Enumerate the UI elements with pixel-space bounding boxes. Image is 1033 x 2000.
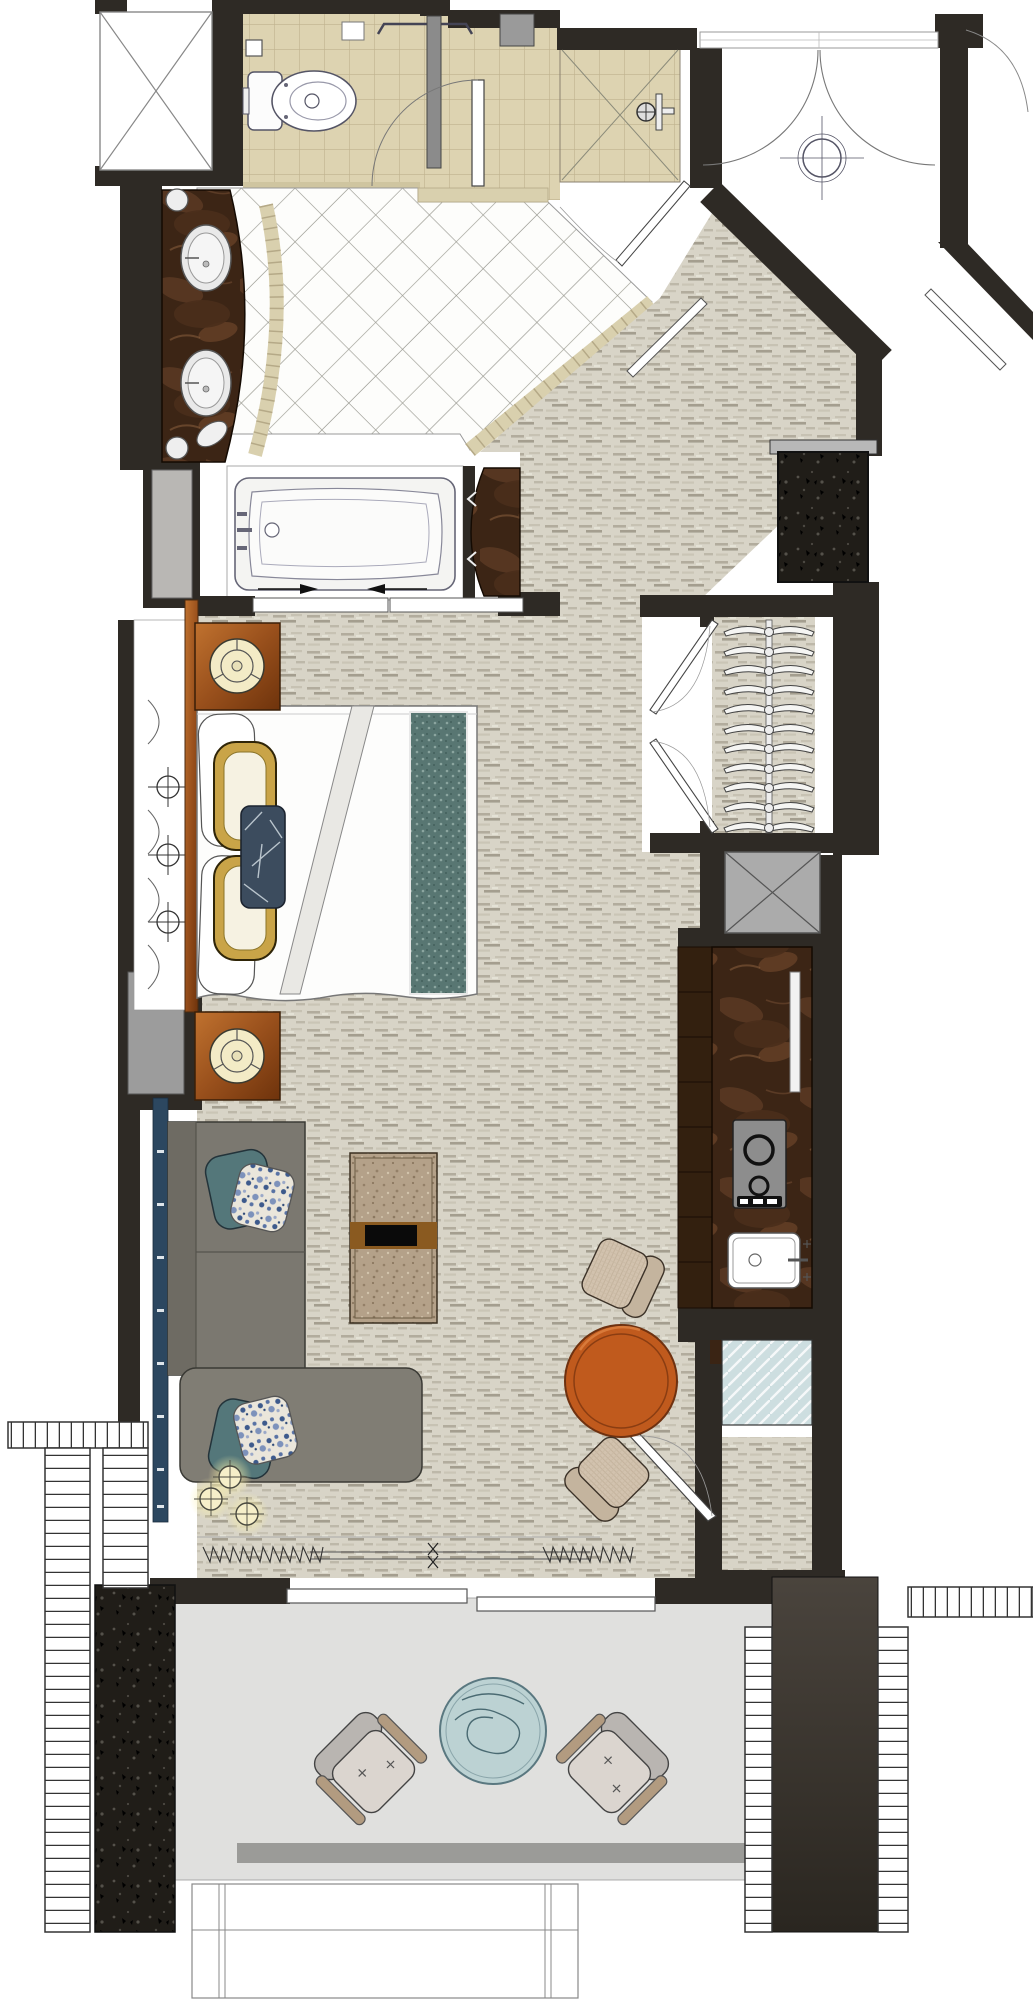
closet-door-leaf [650,620,718,714]
door-leaf [472,80,484,186]
toilet-paper-holder [246,40,262,56]
flush-plate [243,88,249,114]
gray-chase [152,470,192,598]
floor-plan-drawing [0,0,1033,2000]
table-lamp [210,639,264,693]
vanity [162,189,245,462]
table-lamp [210,1029,264,1083]
switch-plate [342,22,364,40]
floor-plan-canvas [0,0,1033,2000]
table-tray [365,1225,417,1246]
balcony-edge-strip [237,1843,790,1863]
tub-drain [265,523,279,537]
door-swing [652,626,710,827]
round-orange-table [565,1325,677,1437]
concrete-column [95,1585,175,1932]
shower-door [616,181,690,266]
marble-partition [471,468,520,596]
accessory [166,189,188,211]
sliding-door-panel [253,598,388,612]
jamb [710,1340,722,1364]
concrete-column [778,452,868,582]
sliding-door-panel [287,1589,467,1603]
foot-runner [410,712,467,994]
slab-below [192,1884,578,1998]
sliding-door-panel [390,598,523,612]
glass-panel [722,1340,812,1425]
neighbor-door-leaf [925,289,1006,370]
ledge-shelf [790,972,800,1092]
closet-door-leaf [650,739,718,833]
toilet-bowl [272,71,356,131]
sliding-door-panel [477,1597,655,1611]
tile-border [418,188,548,202]
angled-wall [938,242,1033,340]
tub-room [235,468,523,612]
alcove-carpet [722,1437,812,1575]
shower-valve [656,94,662,130]
wall-vent [500,14,534,46]
balcony-divider [772,1577,878,1932]
accessory [166,437,188,459]
